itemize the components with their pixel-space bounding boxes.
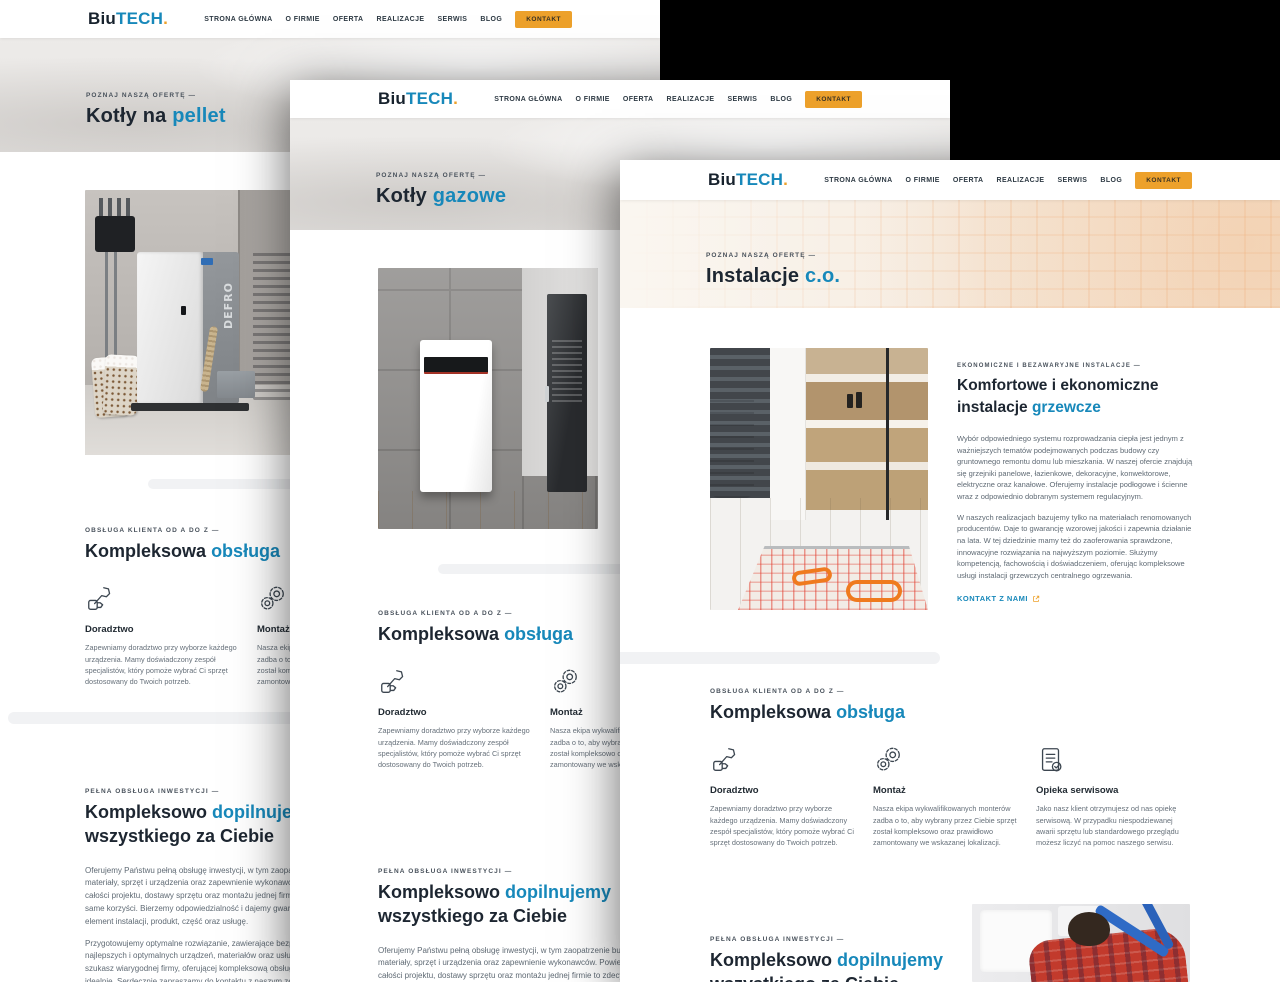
logo-dot: . (453, 89, 458, 108)
feature-opieka-serwisowa: Opieka serwisowa Jako nasz klient otrzym… (1036, 745, 1186, 848)
feature-text: Zapewniamy doradztwo przy wyborze każdeg… (710, 803, 860, 848)
section-eyebrow: OBSŁUGA KLIENTA OD A DO Z — (710, 688, 1190, 695)
feature-doradztwo: Doradztwo Zapewniamy doradztwo przy wybo… (378, 667, 536, 770)
nav-serwis[interactable]: SERWIS (1057, 177, 1087, 184)
intro-paragraph-2: W naszych realizacjach bazujemy tylko na… (957, 512, 1195, 582)
gears-wrench-icon (873, 745, 903, 775)
boiler-base (131, 403, 249, 411)
nav-o-firmie[interactable]: O FIRMIE (576, 96, 610, 103)
door-handle (545, 386, 549, 402)
nav-strona-glowna[interactable]: STRONA GŁÓWNA (494, 96, 562, 103)
heating-pipe-loop (791, 566, 833, 586)
feature-title: Doradztwo (710, 785, 860, 796)
bathroom-underfloor-heating-photo (710, 348, 928, 610)
feature-text: Jako nasz klient otrzymujesz od nas opie… (1036, 803, 1186, 848)
logo-part-biu: Biu (708, 170, 736, 189)
feature-title: Doradztwo (378, 707, 536, 718)
white-tile-wall (770, 348, 806, 520)
nav-blog[interactable]: BLOG (480, 16, 502, 23)
pellet-boiler-room-photo: DEFRO (85, 190, 298, 455)
nav-oferta[interactable]: OFERTA (623, 96, 654, 103)
logo-part-biu: Biu (378, 89, 406, 108)
investment-paragraph-1: Oferujemy Państwu pełną obsługę inwestyc… (378, 945, 660, 982)
feature-doradztwo: Doradztwo Zapewniamy doradztwo przy wybo… (85, 584, 243, 687)
feature-montaz: Montaż Nasza ekipa wykwalifikowanych mon… (873, 745, 1023, 848)
white-gas-boiler (420, 340, 492, 492)
page-title: Instalacje c.o. (706, 265, 1280, 288)
nav-realizacje[interactable]: REALIZACJE (667, 96, 715, 103)
main-nav: STRONA GŁÓWNA O FIRMIE OFERTA REALIZACJE… (204, 11, 572, 28)
gears-wrench-icon (257, 584, 287, 614)
external-link-icon (1032, 595, 1040, 603)
orange-towel (710, 400, 754, 498)
nav-oferta[interactable]: OFERTA (953, 177, 984, 184)
main-nav: STRONA GŁÓWNA O FIRMIE OFERTA REALIZACJE… (494, 91, 862, 108)
feature-title: Montaż (873, 785, 1023, 796)
kontakt-button[interactable]: KONTAKT (805, 91, 862, 108)
logo-part-biu: Biu (88, 9, 116, 28)
kontakt-z-nami-link[interactable]: KONTAKT Z NAMI (957, 594, 1040, 603)
kontakt-button[interactable]: KONTAKT (515, 11, 572, 28)
feature-text: Zapewniamy doradztwo przy wyborze każdeg… (378, 725, 536, 770)
gas-boiler-photo (378, 268, 598, 529)
feature-text: Nasza ekipa wykwalifikowanych monterów z… (873, 803, 1023, 848)
nav-blog[interactable]: BLOG (1100, 177, 1122, 184)
cosmetic-bottle (856, 392, 862, 408)
underfloor-heating-patch (738, 546, 928, 610)
kontakt-button[interactable]: KONTAKT (1135, 172, 1192, 189)
service-section: OBSŁUGA KLIENTA OD A DO Z — Kompleksowa … (710, 688, 1190, 848)
wooden-floor (378, 491, 598, 529)
nav-realizacje[interactable]: REALIZACJE (997, 177, 1045, 184)
hero-eyebrow: POZNAJ NASZĄ OFERTĘ — (706, 252, 1280, 259)
logo-part-tech: TECH (116, 9, 163, 28)
feature-doradztwo: Doradztwo Zapewniamy doradztwo przy wybo… (710, 745, 860, 848)
site-header: BiuTECH. STRONA GŁÓWNA O FIRMIE OFERTA R… (290, 80, 950, 118)
feature-title: Doradztwo (85, 624, 243, 635)
feature-title: Opieka serwisowa (1036, 785, 1186, 796)
logo-dot: . (783, 170, 788, 189)
pellet-hopper (217, 371, 255, 398)
service-checklist-icon (1036, 745, 1066, 775)
logo-dot: . (163, 9, 168, 28)
boiler-brand-badge (201, 258, 213, 265)
intro-paragraph-1: Wybór odpowiedniego systemu rozprowadzan… (957, 433, 1195, 503)
heating-pipe-loop (846, 580, 902, 602)
nav-serwis[interactable]: SERWIS (727, 96, 757, 103)
hero-banner: POZNAJ NASZĄ OFERTĘ — Instalacje c.o. (620, 200, 1280, 308)
logo-part-tech: TECH (406, 89, 453, 108)
feature-list: Doradztwo Zapewniamy doradztwo przy wybo… (710, 745, 1190, 848)
intro-title: Komfortowe i ekonomiczne instalacje grze… (957, 375, 1195, 420)
nav-o-firmie[interactable]: O FIRMIE (906, 177, 940, 184)
section-divider-placeholder (620, 652, 940, 664)
logo[interactable]: BiuTECH. (708, 170, 788, 190)
cosmetic-bottle (847, 394, 853, 408)
logo[interactable]: BiuTECH. (378, 89, 458, 109)
gears-wrench-icon (550, 667, 580, 697)
logo[interactable]: BiuTECH. (88, 9, 168, 29)
defro-pellet-boiler: DEFRO (137, 252, 239, 404)
section-title: Kompleksowa obsługa (710, 700, 1190, 724)
site-header: BiuTECH. STRONA GŁÓWNA O FIRMIE OFERTA R… (620, 160, 1280, 200)
page-instalacje-co: BiuTECH. STRONA GŁÓWNA O FIRMIE OFERTA R… (620, 160, 1280, 982)
wall-manifold (95, 216, 135, 252)
nav-oferta[interactable]: OFERTA (333, 16, 364, 23)
hand-wrench-icon (378, 667, 408, 697)
technician-photo (972, 904, 1190, 982)
nav-strona-glowna[interactable]: STRONA GŁÓWNA (824, 177, 892, 184)
nav-blog[interactable]: BLOG (770, 96, 792, 103)
hand-wrench-icon (85, 584, 115, 614)
nav-o-firmie[interactable]: O FIRMIE (286, 16, 320, 23)
boiler-door (137, 252, 203, 404)
boiler-brand-text: DEFRO (222, 282, 235, 329)
nav-serwis[interactable]: SERWIS (437, 16, 467, 23)
technician-head (1068, 912, 1110, 946)
nav-realizacje[interactable]: REALIZACJE (377, 16, 425, 23)
main-nav: STRONA GŁÓWNA O FIRMIE OFERTA REALIZACJE… (824, 172, 1192, 189)
intro-text-column: EKONOMICZNE I BEZAWARYJNE INSTALACJE — K… (957, 363, 1195, 606)
hand-wrench-icon (710, 745, 740, 775)
shower-glass-edge (886, 348, 889, 520)
boiler-display (181, 306, 186, 315)
site-header: BiuTECH. STRONA GŁÓWNA O FIRMIE OFERTA R… (0, 0, 660, 38)
secondary-boiler-unit (253, 248, 295, 400)
dark-glass-door (547, 294, 587, 492)
wooden-shelves (805, 348, 928, 510)
feature-text: Zapewniamy doradztwo przy wyborze każdeg… (85, 642, 243, 687)
nav-strona-glowna[interactable]: STRONA GŁÓWNA (204, 16, 272, 23)
logo-part-tech: TECH (736, 170, 783, 189)
section-eyebrow: EKONOMICZNE I BEZAWARYJNE INSTALACJE — (957, 363, 1195, 369)
